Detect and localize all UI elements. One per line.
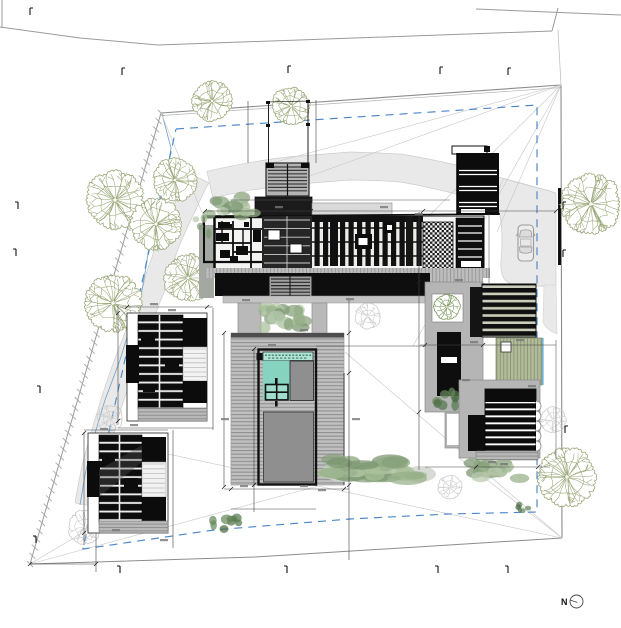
svg-text:N: N — [561, 597, 568, 607]
